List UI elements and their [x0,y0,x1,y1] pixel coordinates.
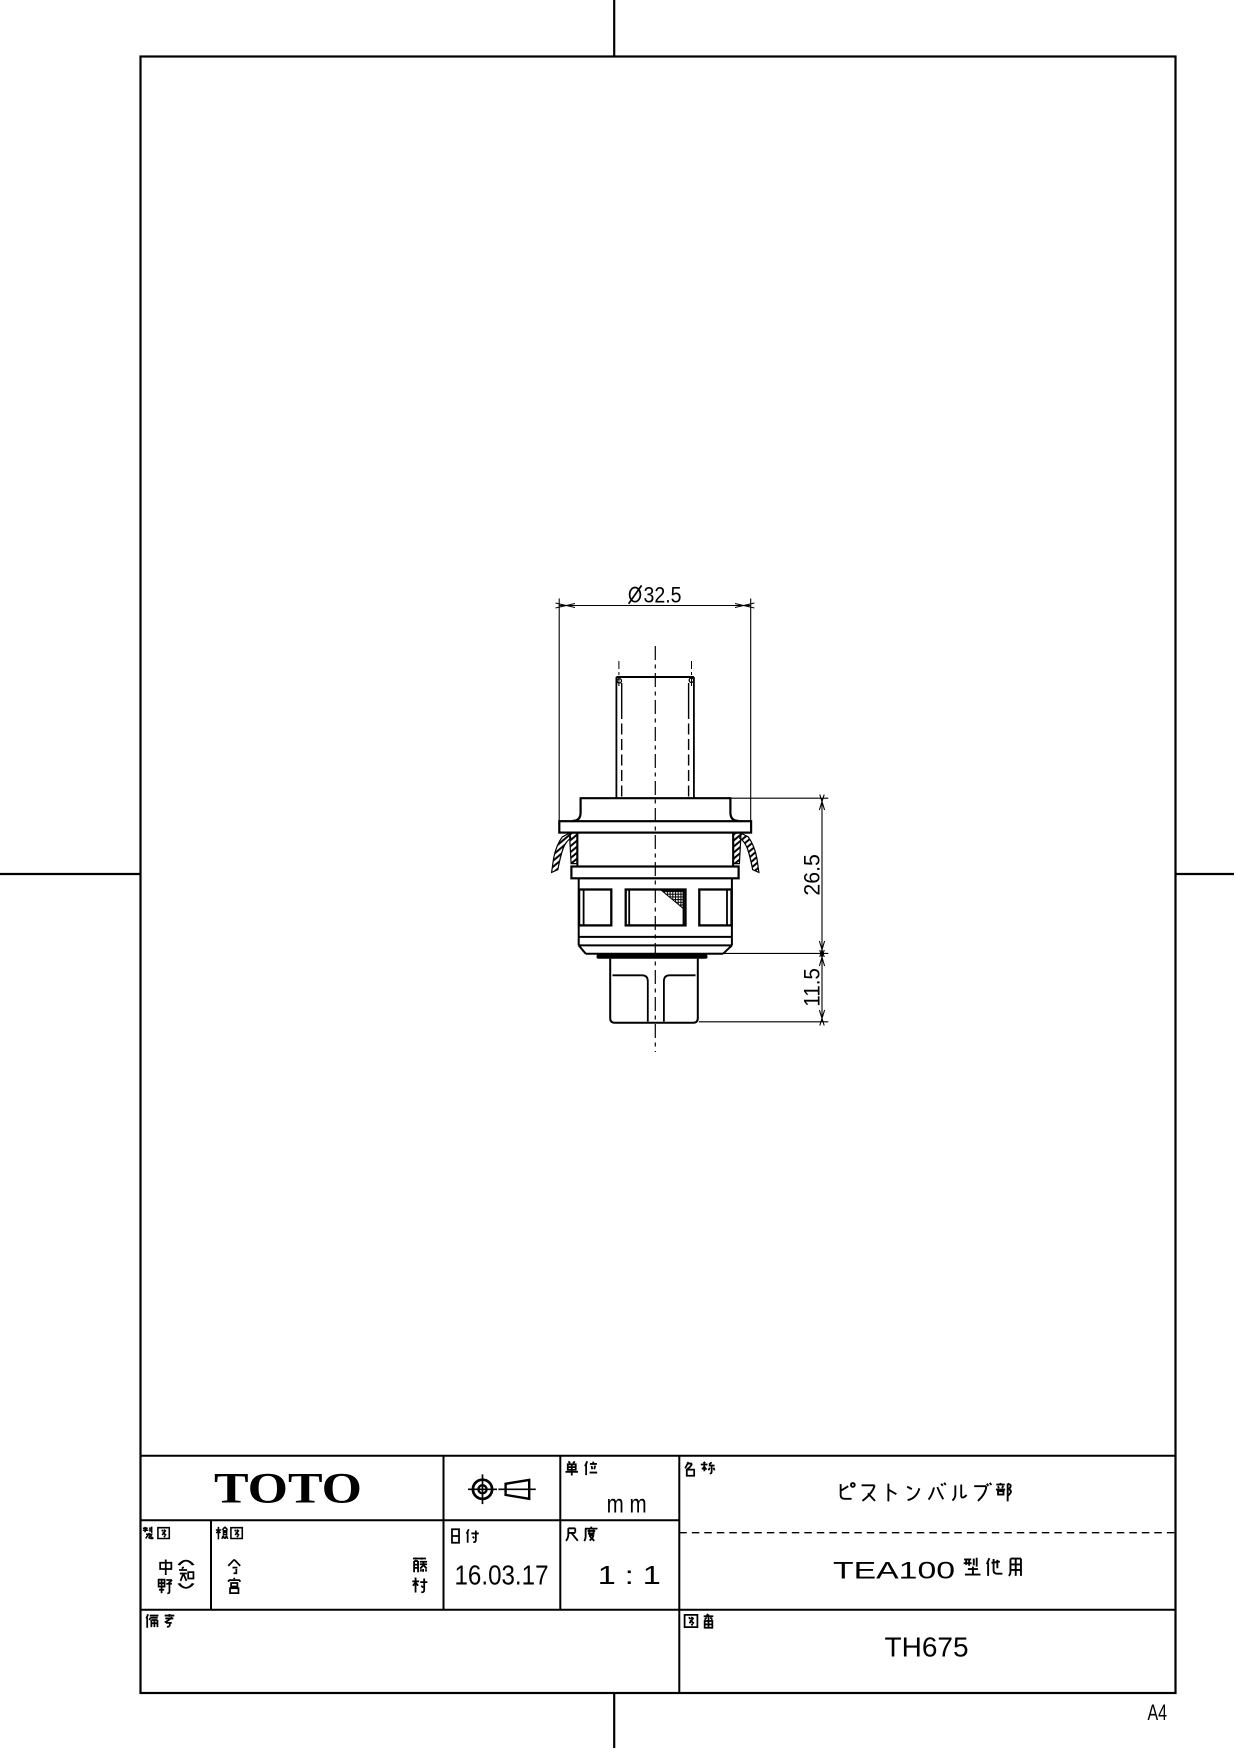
svg-text:16.03.17: 16.03.17 [455,1560,549,1591]
svg-text:TH675: TH675 [885,1632,969,1663]
svg-text:1 : 1: 1 : 1 [598,1560,661,1590]
svg-text:11.5: 11.5 [800,968,825,1007]
svg-text:m m: m m [607,1489,647,1519]
svg-text:TOTO: TOTO [214,1465,362,1512]
svg-text:A4: A4 [1148,1700,1168,1725]
svg-text:TEA100: TEA100 [833,1558,955,1585]
svg-text:26.5: 26.5 [800,854,825,896]
svg-text:32.5: 32.5 [644,583,682,608]
